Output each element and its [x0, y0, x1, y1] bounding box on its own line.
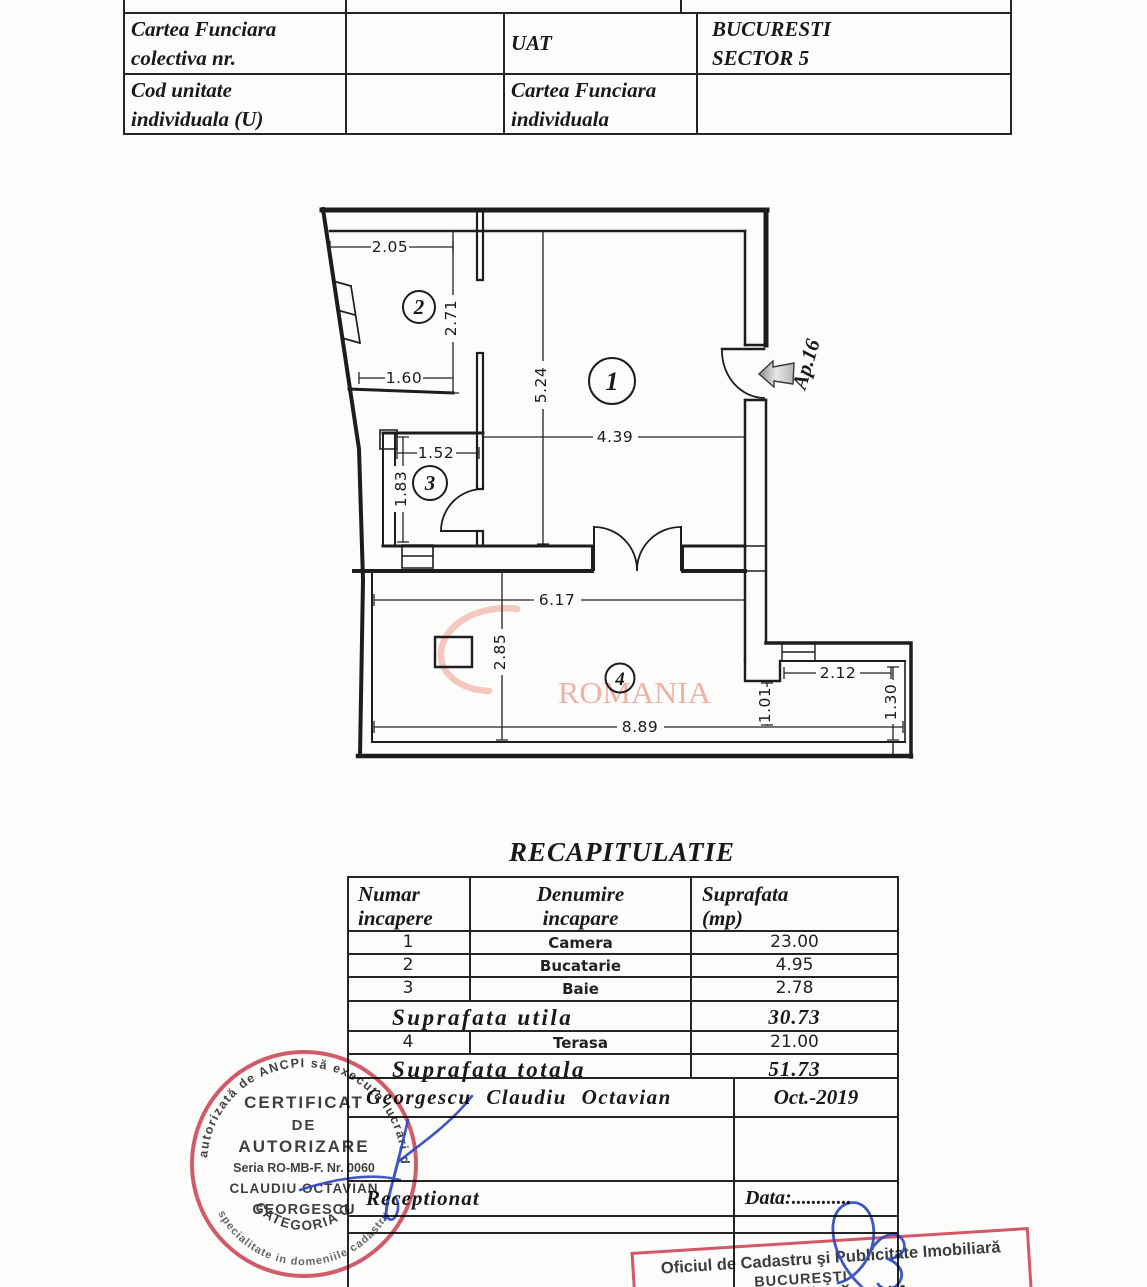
- scanned-cadastral-document: { "doc": { "top_table": { "r1c1a": "Cart…: [0, 0, 1147, 1287]
- stamp-ring-top-text: autorizată de ANCPI să execute lucrări d…: [0, 0, 412, 1166]
- stamps-overlay: autorizată de ANCPI să execute lucrări d…: [0, 0, 1147, 1287]
- stamp-line-seria: Seria RO-MB-F. Nr. 0060: [233, 1161, 375, 1175]
- certificate-stamp: autorizată de ANCPI să execute lucrări d…: [0, 0, 416, 1276]
- stamp-line-certificat: CERTIFICAT: [244, 1093, 364, 1112]
- svg-text:specialitate in domeniile cada: specialitate in domeniile cadastru, geod…: [0, 0, 392, 1268]
- stamp-line-autorizare: AUTORIZARE: [238, 1137, 369, 1156]
- svg-text:autorizată de ANCPI să execute: autorizată de ANCPI să execute lucrări d…: [0, 0, 412, 1166]
- ocpi-line2: BUCUREŞTI: [754, 1269, 848, 1287]
- stamp-line-de: DE: [292, 1117, 317, 1134]
- stamp-ring-bottom-text: specialitate in domeniile cadastru, geod…: [0, 0, 392, 1268]
